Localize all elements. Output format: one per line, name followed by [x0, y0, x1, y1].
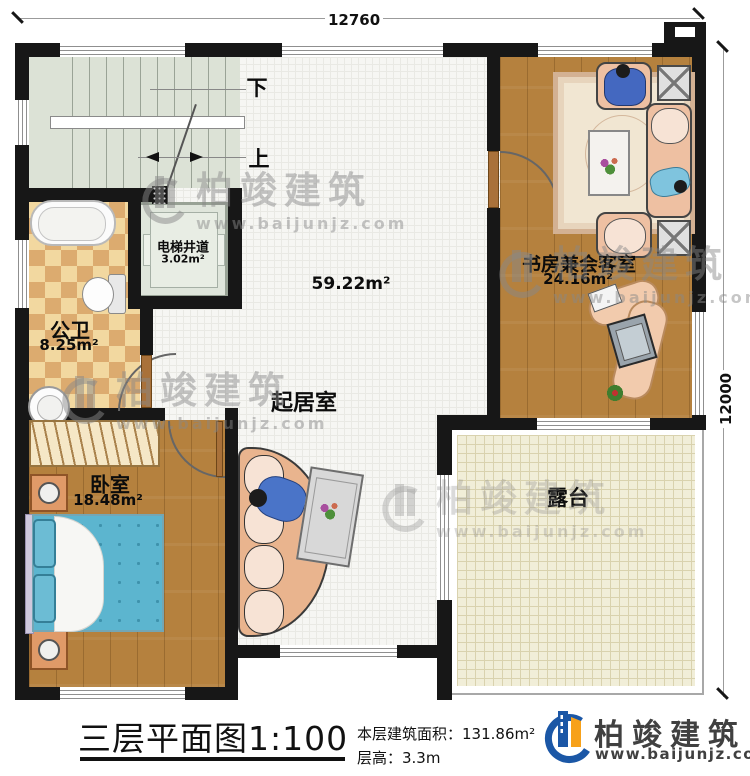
wall-terrace-left-lower: [437, 600, 452, 700]
building-area-text: 本层建筑面积：131.86m²: [357, 723, 535, 744]
terrace-name: 露台: [547, 482, 589, 512]
person-head: [249, 489, 267, 507]
elevator-rail-left: [143, 234, 151, 266]
floor-height-text: 层高：3.3m: [357, 747, 440, 768]
person-head: [616, 64, 630, 78]
window: [15, 240, 29, 308]
living-name: 起居室: [271, 385, 337, 417]
window: [60, 687, 185, 700]
bed-pillow: [33, 574, 56, 623]
nightstand-lamp-icon: [38, 482, 60, 504]
wall-elevator-left: [128, 202, 141, 309]
stairs-down-label: 下: [247, 72, 268, 102]
wall-bathroom-right: [140, 309, 153, 355]
study-area: 24.16m²: [543, 270, 613, 288]
elevator-rail-right: [217, 234, 225, 266]
side-table: [657, 65, 691, 101]
wardrobe: [29, 420, 160, 467]
wall-study-left-lower: [487, 208, 500, 418]
living-area: 59.22m²: [312, 274, 391, 294]
sofa-cushion: [244, 590, 284, 634]
window: [538, 43, 652, 57]
sink-basin: [37, 395, 63, 421]
dimension-top-value: 12760: [325, 11, 383, 29]
dimension-right-value: 12000: [717, 370, 735, 428]
wall-elevator-bottom: [128, 296, 240, 309]
elevator-area: 3.02m²: [161, 253, 204, 266]
stair-arrow-left-icon: [146, 152, 159, 162]
chimney-flue: [675, 27, 695, 37]
wall-elevator-right: [228, 188, 242, 309]
floor-plan: 下 上 电梯井道 3.02m² 公卫 8.25m² 59.22m² 起居室 书房…: [0, 0, 750, 776]
flower-vase-icon: [318, 500, 340, 520]
window: [60, 43, 185, 57]
wall-terrace-left-upper: [437, 430, 452, 475]
bathroom-area: 8.25m²: [39, 336, 98, 354]
stairs-up-label: 上: [249, 143, 270, 173]
window: [537, 418, 650, 430]
bathroom-door-panel: [141, 355, 152, 408]
flower-vase-icon: [598, 155, 620, 175]
toilet-bowl: [82, 277, 114, 312]
brand-website: www.baijunjz.com: [595, 745, 750, 763]
title-underline: [80, 757, 345, 761]
wall-bedroom-right: [225, 408, 238, 700]
side-table: [657, 220, 691, 256]
window: [692, 312, 706, 415]
terrace-floor: [452, 430, 704, 695]
sofa-cushion: [651, 108, 689, 144]
terrace-tile-grid: [457, 435, 695, 686]
stair-handrail: [50, 116, 245, 129]
stair-arrow-right-icon: [190, 152, 203, 162]
wall-study-left-upper: [487, 57, 500, 151]
stair-direction-line-down: [150, 89, 246, 90]
terrace-sliding-door: [437, 475, 452, 600]
wall-column-hatched: [152, 186, 168, 204]
potted-plant-icon: [606, 384, 624, 402]
bathtub-basin: [38, 207, 106, 241]
window: [282, 43, 443, 57]
window: [15, 100, 29, 145]
bed-pillow: [33, 519, 56, 568]
bedroom-area: 18.48m²: [73, 491, 143, 509]
plan-title: 三层平面图1:100: [78, 712, 348, 760]
nightstand-lamp-icon: [38, 639, 60, 661]
study-door-panel: [488, 151, 499, 208]
window: [280, 645, 397, 658]
sofa-cushion: [244, 545, 284, 589]
brand-logo-icon: [541, 708, 591, 770]
bedroom-door-panel: [216, 421, 223, 477]
person-head: [674, 180, 687, 193]
stair-treads-upper: [72, 57, 240, 116]
